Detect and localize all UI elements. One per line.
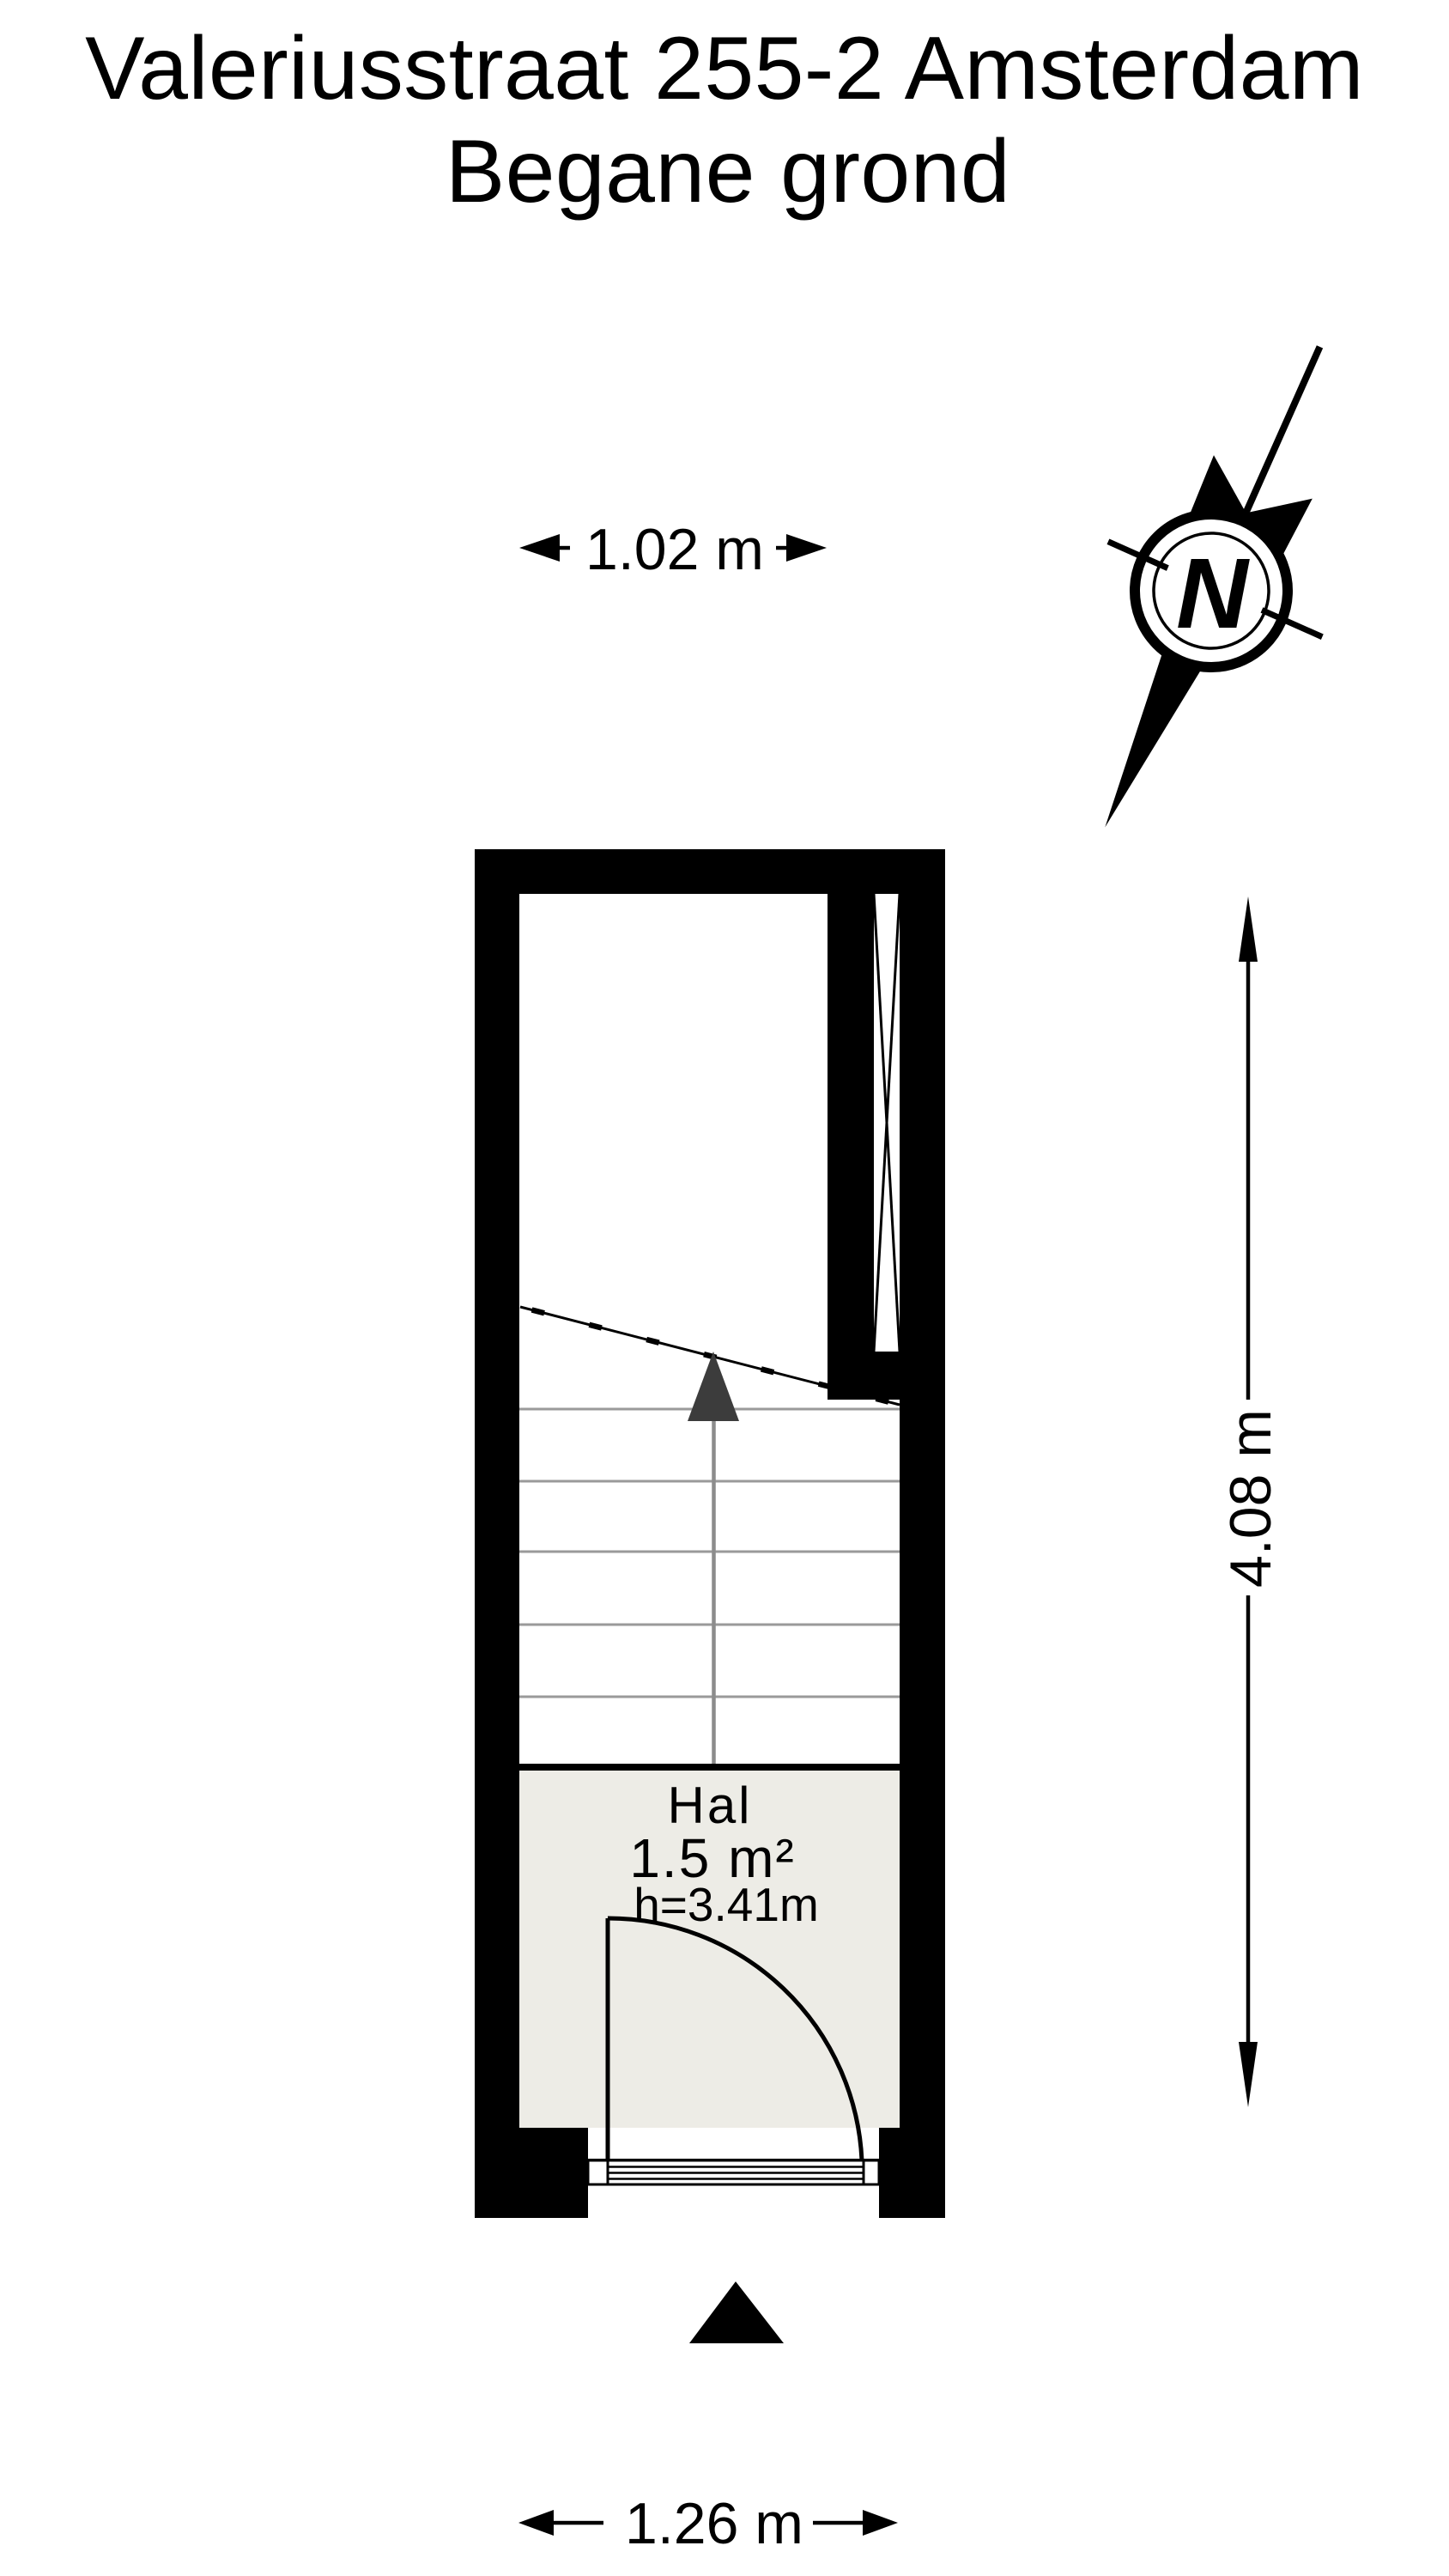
- svg-text:4.08 m: 4.08 m: [1218, 1409, 1283, 1588]
- svg-text:1.26 m: 1.26 m: [625, 2491, 803, 2556]
- svg-text:Valeriusstraat 255-2 Amsterdam: Valeriusstraat 255-2 Amsterdam: [85, 19, 1364, 118]
- svg-text:Begane grond: Begane grond: [446, 122, 1010, 222]
- svg-text:Hal: Hal: [667, 1777, 752, 1834]
- svg-text:N: N: [1176, 538, 1250, 649]
- svg-text:1.02 m: 1.02 m: [585, 517, 764, 582]
- svg-text:h=3.41m: h=3.41m: [634, 1878, 819, 1931]
